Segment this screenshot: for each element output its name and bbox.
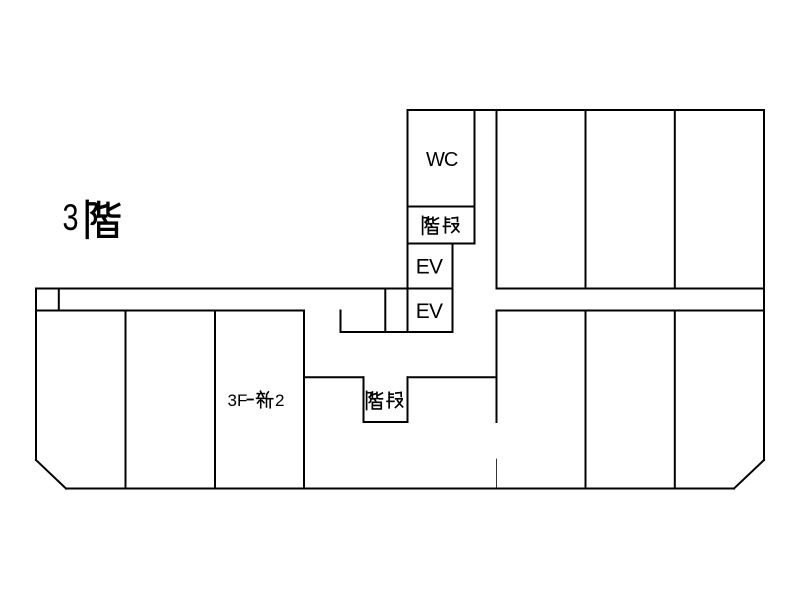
svg-text:2: 2 [275,391,284,410]
svg-text:WC: WC [426,149,458,171]
svg-text:EV: EV [416,256,443,279]
svg-text:EV: EV [416,300,443,323]
svg-text:3: 3 [63,197,79,238]
svg-text:3F: 3F [228,391,248,410]
